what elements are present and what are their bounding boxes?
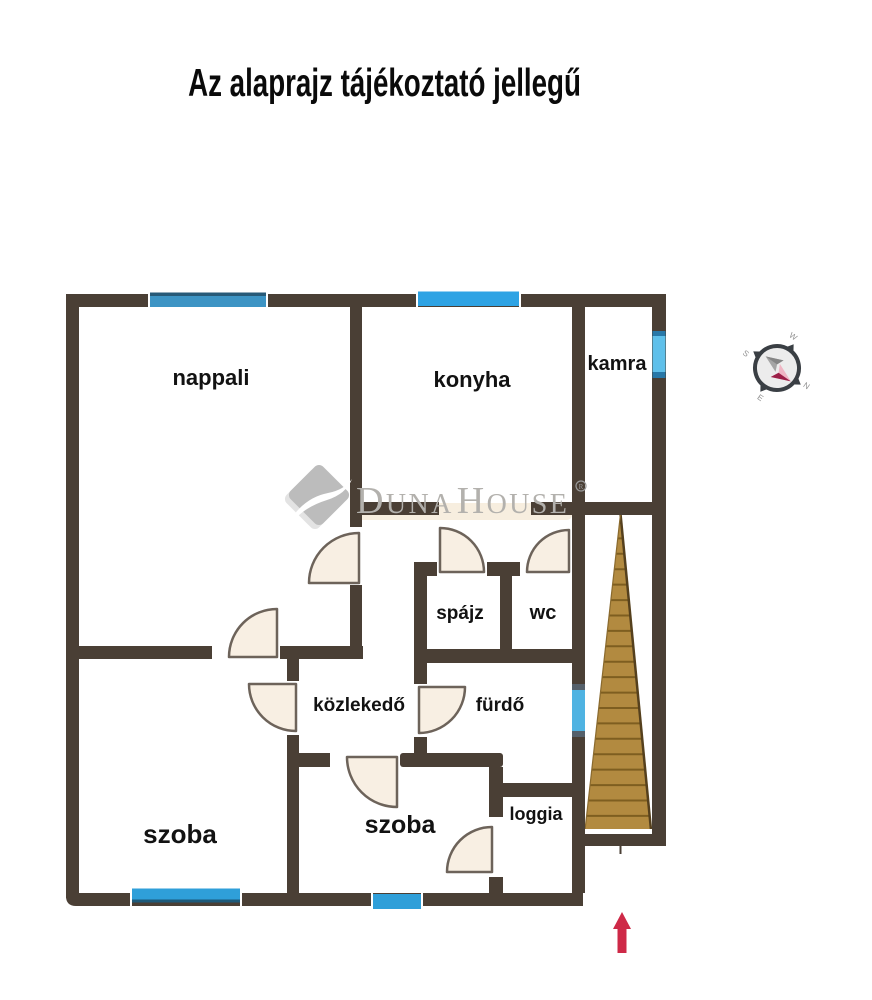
svg-text:konyha: konyha <box>433 367 511 392</box>
svg-text:spájz: spájz <box>436 603 484 624</box>
svg-text:nappali: nappali <box>172 365 249 390</box>
svg-text:wc: wc <box>529 602 557 624</box>
svg-text:loggia: loggia <box>510 804 564 824</box>
svg-text:Az alaprajz tájékoztató jelleg: Az alaprajz tájékoztató jellegű <box>188 61 581 105</box>
svg-text:fürdő: fürdő <box>476 695 525 716</box>
svg-text:kamra: kamra <box>588 353 648 375</box>
svg-text:R: R <box>579 483 584 491</box>
svg-text:szoba: szoba <box>365 811 437 839</box>
svg-text:szoba: szoba <box>143 819 217 849</box>
svg-text:közlekedő: közlekedő <box>313 695 405 716</box>
